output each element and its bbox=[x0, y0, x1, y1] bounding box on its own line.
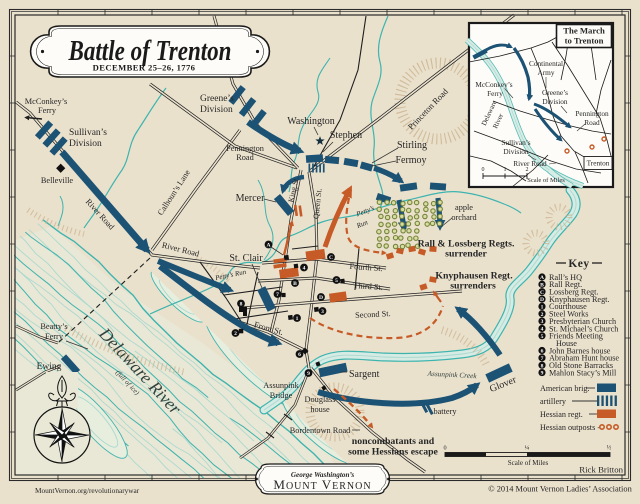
svg-text:Sullivan’s: Sullivan’s bbox=[501, 138, 530, 147]
svg-text:Washington: Washington bbox=[287, 116, 335, 127]
svg-text:6: 6 bbox=[298, 352, 301, 358]
svg-text:2: 2 bbox=[541, 312, 544, 318]
svg-text:Key: Key bbox=[568, 258, 589, 270]
svg-text:Pennington: Pennington bbox=[575, 109, 609, 118]
svg-text:DECEMBER 25–26, 1776: DECEMBER 25–26, 1776 bbox=[93, 63, 196, 73]
svg-text:Hessian outposts -: Hessian outposts - bbox=[540, 423, 600, 432]
svg-text:MountVernon.org/revolutionaryw: MountVernon.org/revolutionarywar bbox=[35, 486, 140, 495]
svg-text:5: 5 bbox=[335, 278, 338, 284]
svg-text:8: 8 bbox=[240, 302, 243, 308]
svg-text:Trenton: Trenton bbox=[587, 159, 610, 168]
svg-text:6: 6 bbox=[541, 349, 544, 355]
svg-text:Sargent: Sargent bbox=[349, 369, 380, 380]
svg-text:surrenders: surrenders bbox=[450, 281, 496, 292]
svg-text:2: 2 bbox=[526, 167, 529, 173]
svg-text:St. Clair: St. Clair bbox=[229, 253, 263, 264]
svg-text:Beatty’s: Beatty’s bbox=[40, 322, 67, 331]
svg-text:Assunpink: Assunpink bbox=[263, 381, 299, 390]
svg-text:noncombatants and: noncombatants and bbox=[352, 436, 435, 447]
svg-text:surrender: surrender bbox=[445, 249, 487, 260]
svg-text:© 2014 Mount Vernon Ladies’ As: © 2014 Mount Vernon Ladies’ Association bbox=[488, 485, 632, 494]
svg-text:Continental: Continental bbox=[529, 59, 563, 68]
svg-text:Ferry: Ferry bbox=[38, 106, 57, 115]
svg-text:½: ½ bbox=[607, 445, 612, 452]
svg-text:McConkey’s: McConkey’s bbox=[475, 80, 512, 89]
svg-text:9: 9 bbox=[541, 371, 544, 377]
svg-text:C: C bbox=[329, 255, 333, 261]
svg-text:Division: Division bbox=[200, 105, 233, 115]
svg-text:Stephen: Stephen bbox=[330, 130, 362, 141]
svg-text:Fermoy: Fermoy bbox=[395, 155, 426, 166]
svg-text:Scale of Miles: Scale of Miles bbox=[527, 177, 565, 184]
svg-text:B: B bbox=[540, 282, 544, 288]
svg-text:Ferry: Ferry bbox=[487, 89, 503, 98]
svg-text:3: 3 bbox=[541, 319, 544, 325]
svg-text:to Trenton: to Trenton bbox=[565, 36, 604, 46]
svg-text:1: 1 bbox=[541, 305, 544, 311]
svg-text:artillery: artillery bbox=[540, 397, 567, 406]
svg-text:Douglass: Douglass bbox=[305, 395, 336, 404]
svg-text:Stirling: Stirling bbox=[397, 140, 427, 151]
svg-text:Bridge: Bridge bbox=[270, 391, 293, 400]
svg-text:5: 5 bbox=[541, 334, 544, 340]
svg-text:8: 8 bbox=[541, 363, 544, 369]
svg-text:4: 4 bbox=[541, 327, 544, 333]
svg-text:1: 1 bbox=[504, 167, 507, 173]
svg-text:3: 3 bbox=[321, 309, 324, 315]
svg-text:Road: Road bbox=[584, 118, 600, 127]
svg-text:D: D bbox=[540, 297, 544, 303]
svg-text:Division: Division bbox=[69, 139, 102, 149]
svg-text:4: 4 bbox=[303, 266, 306, 272]
svg-text:Bordentown Road: Bordentown Road bbox=[290, 426, 351, 435]
svg-text:Scale of Miles: Scale of Miles bbox=[508, 459, 549, 467]
svg-text:battery: battery bbox=[433, 407, 457, 416]
svg-text:C: C bbox=[540, 290, 544, 296]
svg-text:The March: The March bbox=[563, 26, 605, 36]
svg-text:0: 0 bbox=[482, 167, 485, 173]
svg-text:1: 1 bbox=[296, 316, 299, 322]
svg-text:Road: Road bbox=[236, 153, 254, 162]
svg-text:Ferry: Ferry bbox=[45, 332, 64, 341]
svg-text:American brig.: American brig. bbox=[540, 384, 590, 393]
svg-text:Second St.: Second St. bbox=[355, 309, 391, 320]
svg-text:River Road: River Road bbox=[513, 159, 547, 168]
svg-text:7: 7 bbox=[276, 292, 279, 298]
svg-text:A: A bbox=[266, 243, 270, 249]
svg-text:2: 2 bbox=[234, 331, 237, 337]
svg-text:Sullivan’s: Sullivan’s bbox=[69, 128, 107, 138]
svg-text:McConkey’s: McConkey’s bbox=[25, 97, 67, 106]
svg-text:Division: Division bbox=[503, 147, 528, 156]
svg-text:house: house bbox=[310, 405, 330, 414]
svg-text:Mahlon Stacy’s Mill: Mahlon Stacy’s Mill bbox=[549, 368, 617, 377]
svg-text:0: 0 bbox=[443, 445, 446, 452]
svg-text:Pennington: Pennington bbox=[226, 144, 265, 153]
svg-text:¼: ¼ bbox=[525, 445, 530, 452]
svg-text:Division: Division bbox=[542, 97, 567, 106]
svg-text:Hessian regt.: Hessian regt. bbox=[540, 410, 583, 419]
svg-text:Greene’s: Greene’s bbox=[200, 94, 234, 104]
svg-text:9: 9 bbox=[307, 371, 310, 377]
svg-text:some Hessians escape: some Hessians escape bbox=[348, 447, 438, 458]
svg-text:apple: apple bbox=[455, 203, 473, 212]
svg-text:D: D bbox=[319, 295, 323, 301]
svg-text:Ewing: Ewing bbox=[37, 362, 62, 372]
svg-text:B: B bbox=[293, 281, 297, 287]
svg-text:7: 7 bbox=[541, 356, 544, 362]
svg-text:Rick Britton: Rick Britton bbox=[579, 465, 623, 475]
svg-text:Army: Army bbox=[537, 68, 554, 77]
svg-text:A: A bbox=[540, 275, 544, 281]
svg-text:Belleville: Belleville bbox=[41, 176, 74, 185]
svg-text:Mercer: Mercer bbox=[236, 193, 266, 204]
svg-text:Greene’s: Greene’s bbox=[542, 88, 568, 97]
svg-text:orchard: orchard bbox=[451, 213, 477, 222]
